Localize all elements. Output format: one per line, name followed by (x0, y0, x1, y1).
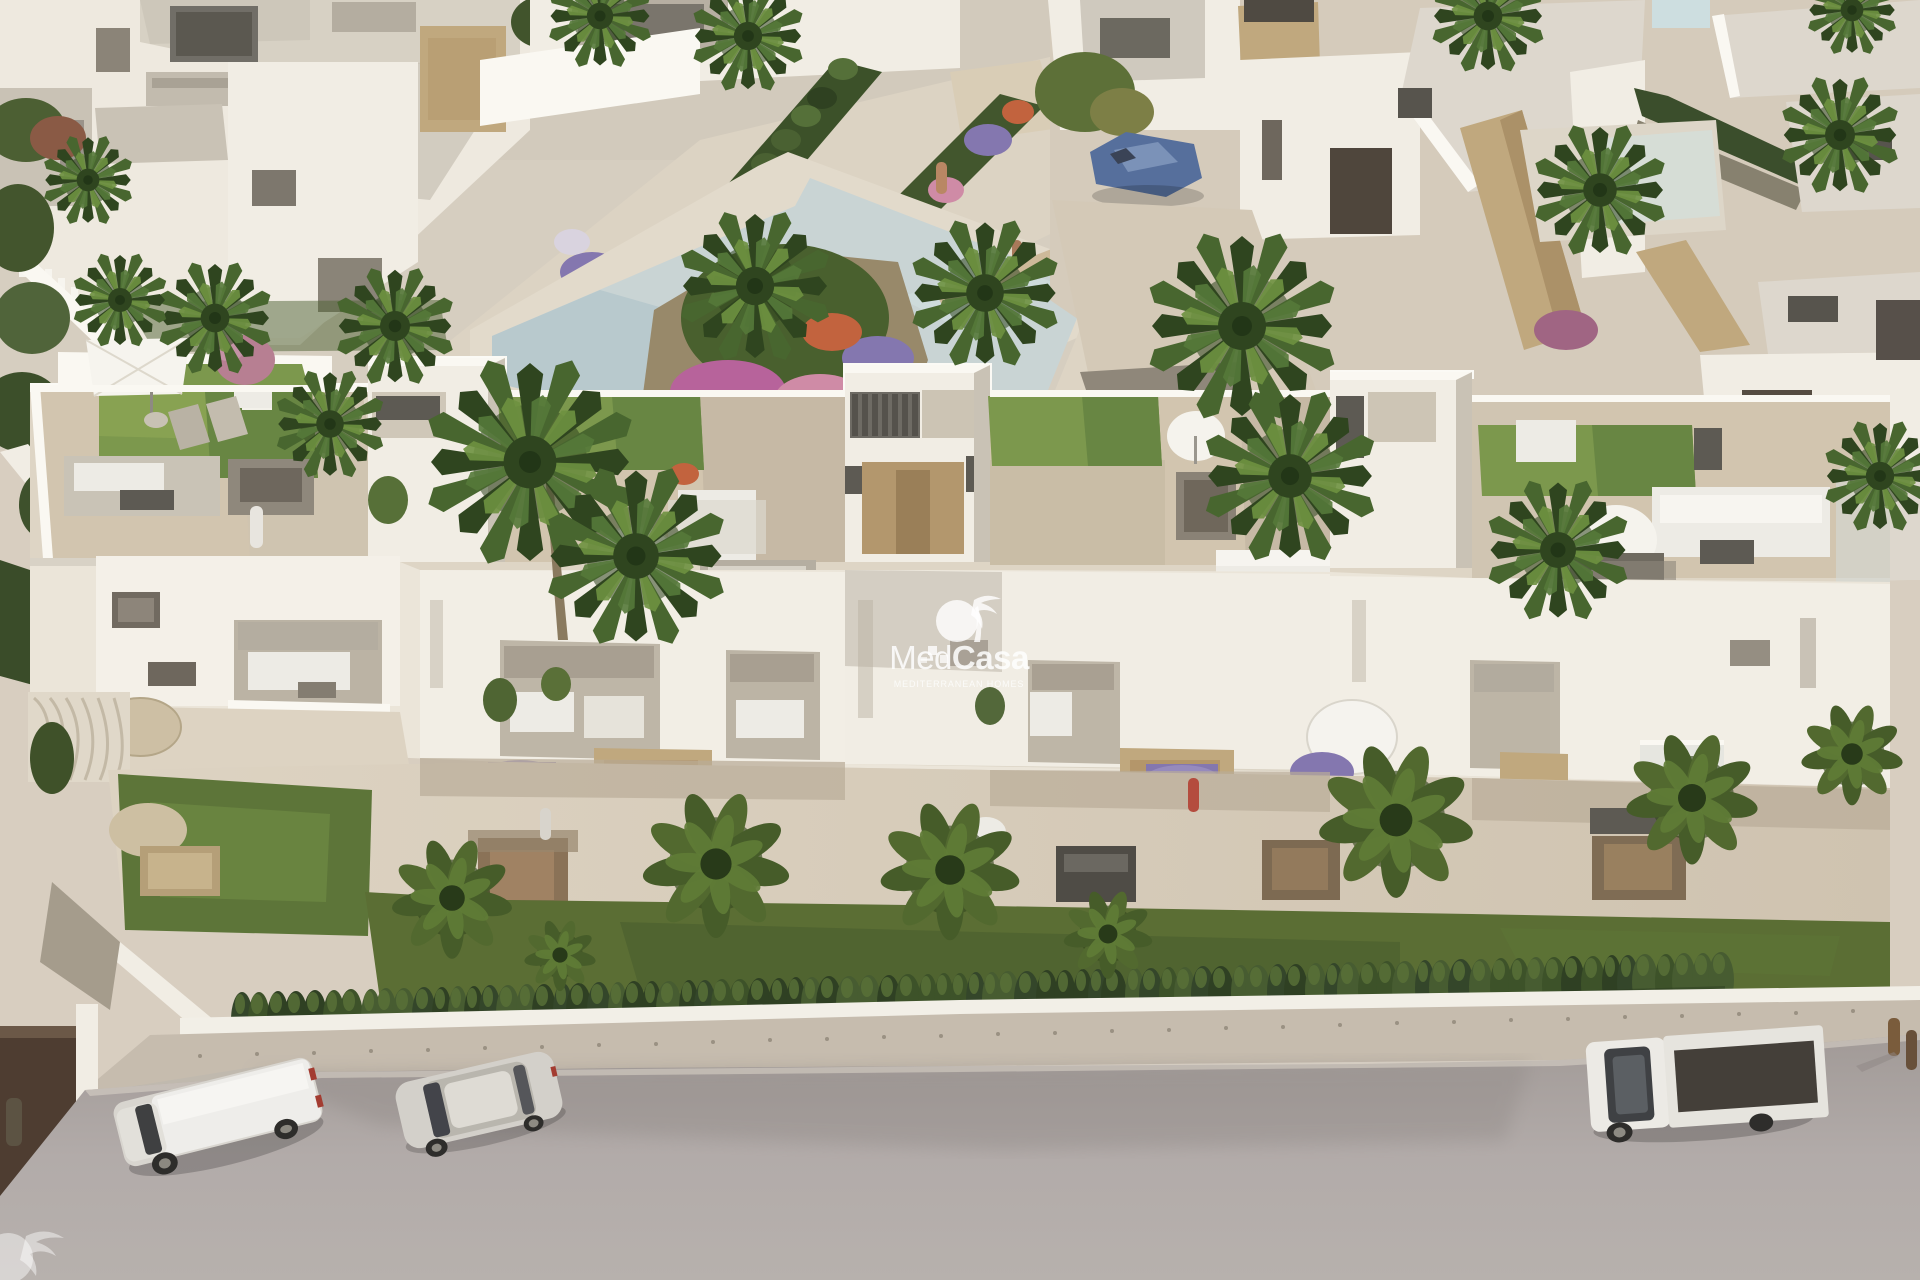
svg-text:MEDITERRANEAN HOMES: MEDITERRANEAN HOMES (894, 679, 1025, 689)
svg-text:MedCasa: MedCasa (889, 639, 1030, 676)
